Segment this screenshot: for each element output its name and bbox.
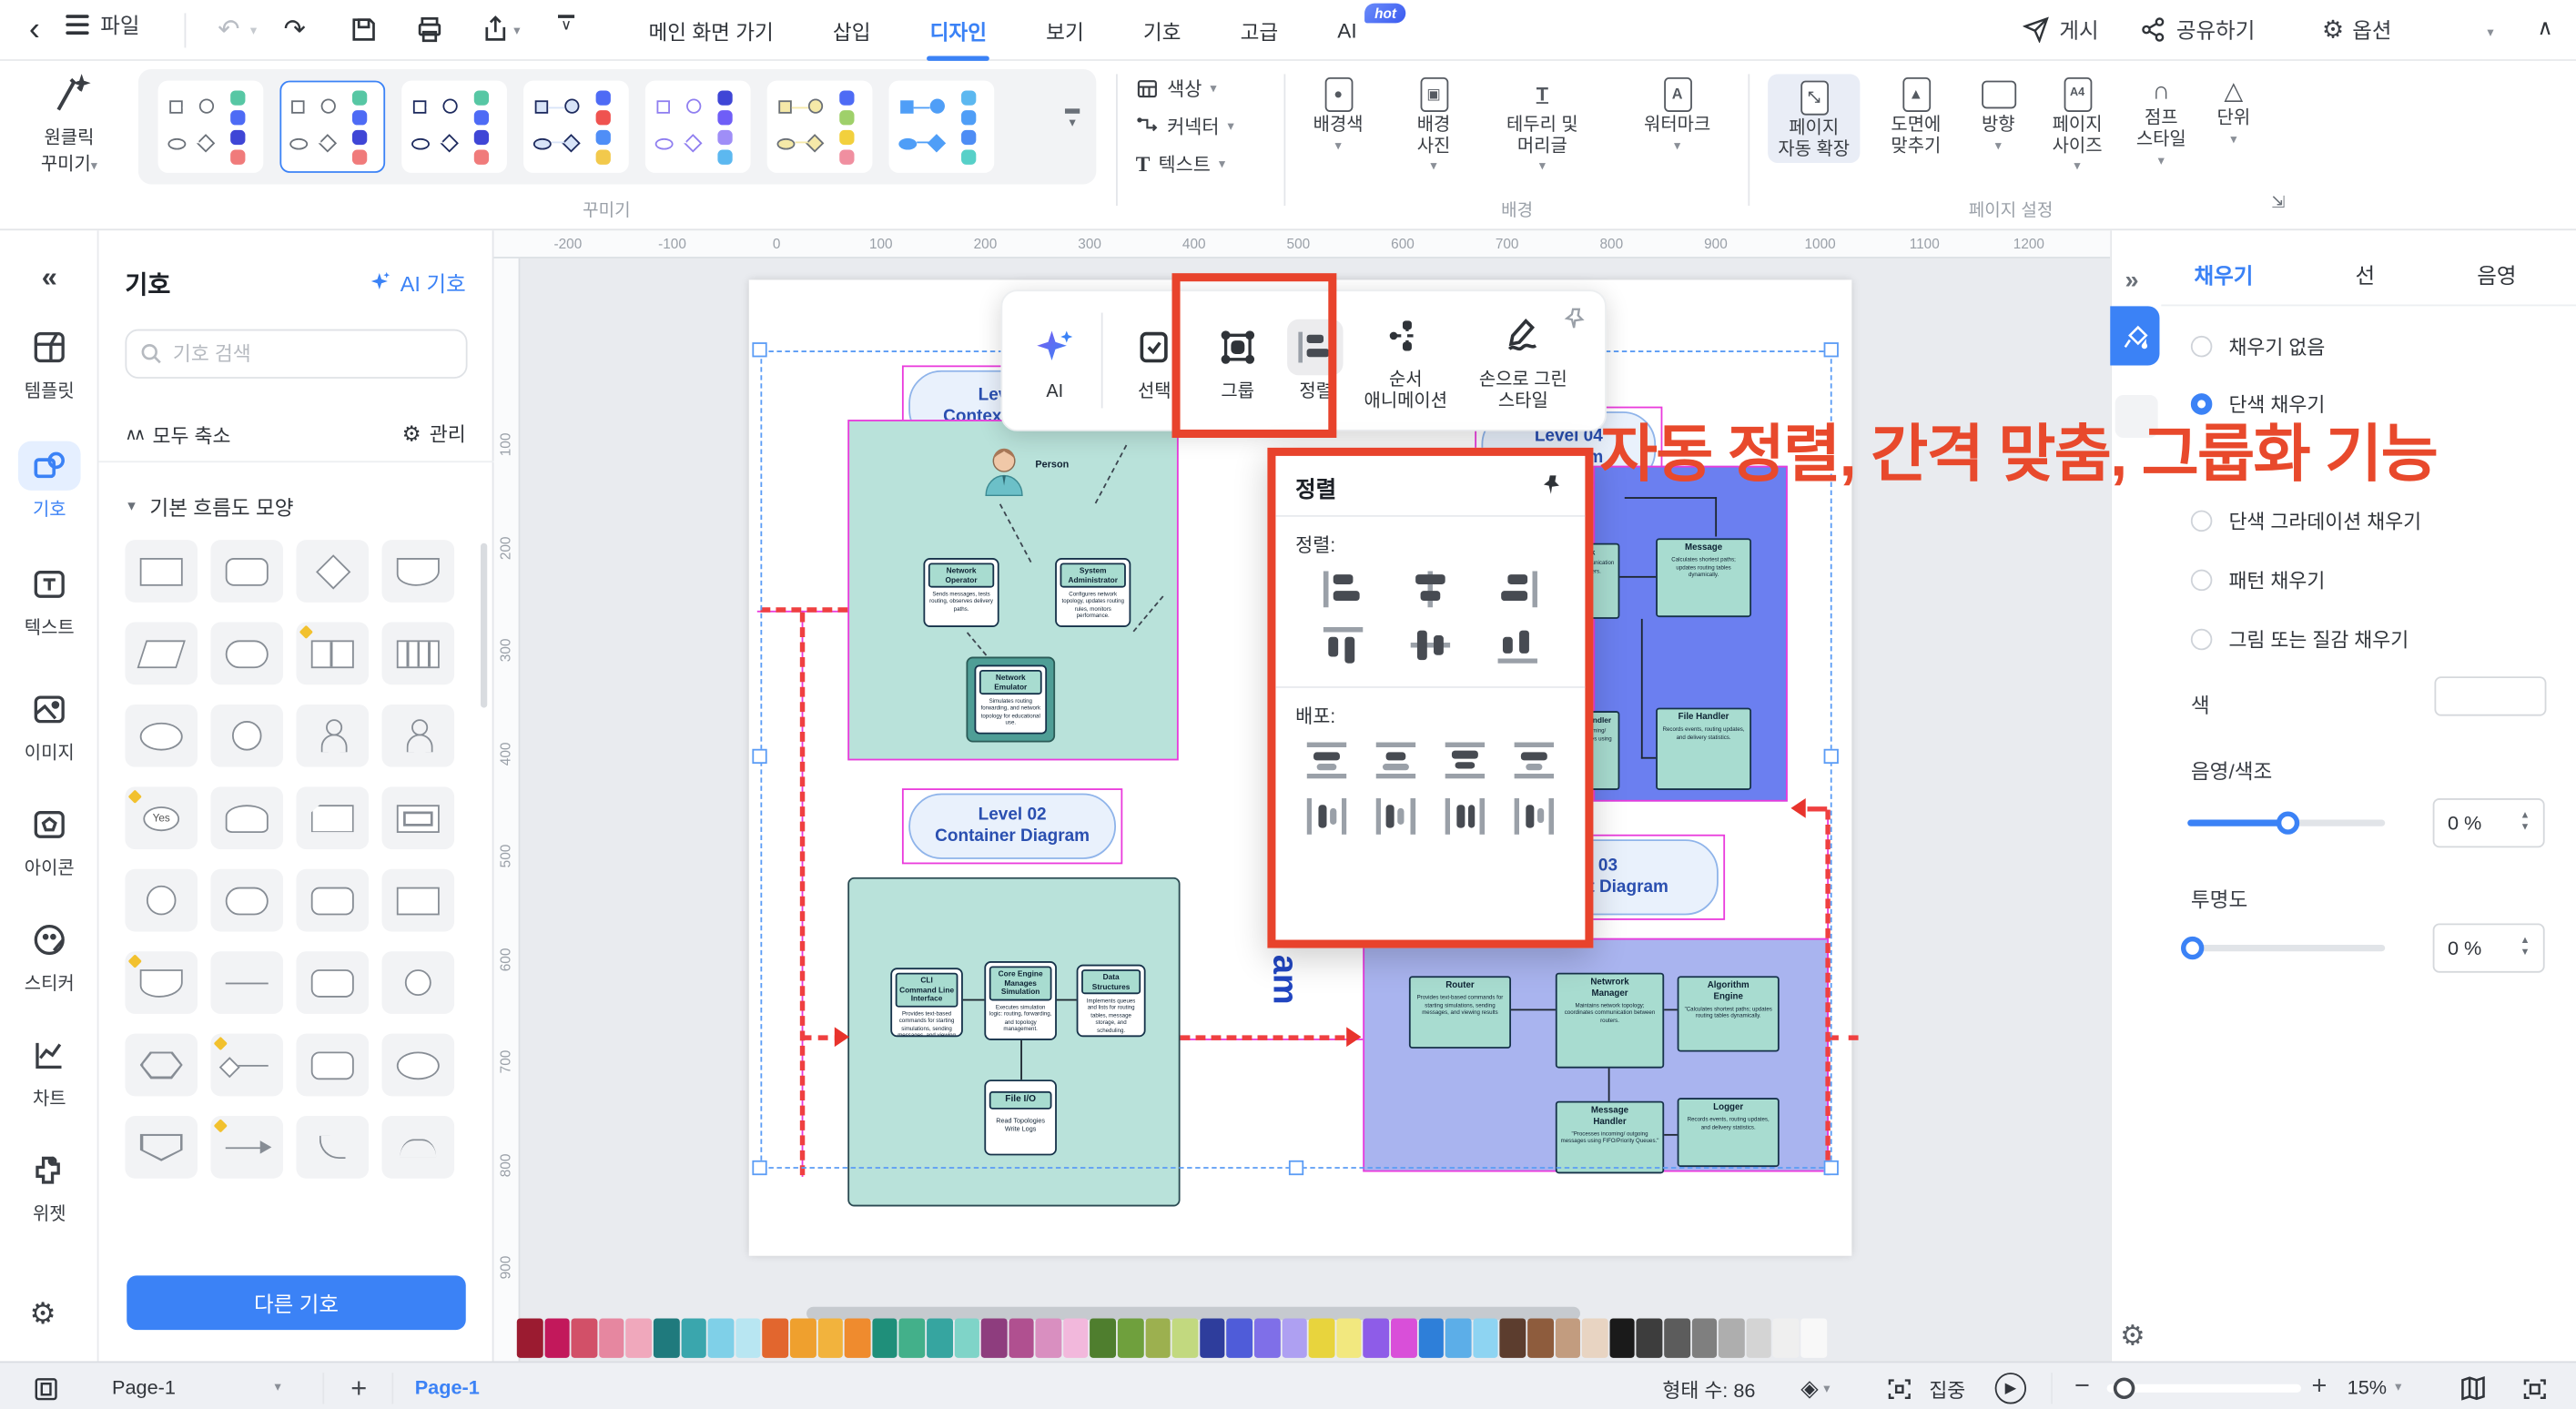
- order-animation-button[interactable]: 순서 애니메이션: [1354, 309, 1458, 412]
- color-swatch[interactable]: [1637, 1318, 1662, 1357]
- unit-button[interactable]: △단위▾: [2206, 77, 2261, 147]
- shape-flag[interactable]: [382, 540, 455, 603]
- export-caret-icon[interactable]: ▾: [513, 25, 520, 37]
- tab-advanced[interactable]: 고급: [1233, 0, 1284, 61]
- text-T-icon: T: [1136, 150, 1151, 177]
- fit-screen-icon[interactable]: [2521, 1376, 2548, 1403]
- vertical-ruler: 100200300400500600700800900: [493, 258, 520, 1363]
- shape-person[interactable]: [382, 704, 455, 767]
- page-selector[interactable]: Page-1▾: [112, 1376, 281, 1399]
- color-swatch[interactable]: [626, 1318, 652, 1357]
- page-auto-expand-button[interactable]: ⤡페이지 자동 확장: [1768, 74, 1860, 163]
- app-window: ‹ 파일 ↶ ▾ ↷ ▾ ∨ 메인 화면 가기 삽입 디자인 보기 기호 고급: [0, 0, 2576, 1409]
- zoom-slider-knob[interactable]: [2114, 1378, 2135, 1400]
- symbols-icon: [18, 441, 81, 491]
- page-tab-active[interactable]: Page-1: [415, 1376, 480, 1399]
- premium-badge: [214, 1119, 228, 1132]
- publish-button[interactable]: 게시: [2023, 13, 2099, 44]
- divider: [1116, 74, 1118, 206]
- transparency-spinner[interactable]: 0 %▲▼: [2433, 923, 2545, 972]
- ai-symbols-button[interactable]: AI 기호: [368, 267, 466, 298]
- shape-flag[interactable]: [125, 951, 198, 1014]
- shape-dline[interactable]: [210, 1034, 283, 1097]
- tab-fill[interactable]: 채우기: [2194, 258, 2253, 289]
- shape-arrow[interactable]: [210, 1116, 283, 1179]
- hot-badge: hot: [1364, 4, 1406, 24]
- back-icon[interactable]: ‹: [13, 8, 56, 51]
- bg-color-button[interactable]: ●배경색▾: [1301, 77, 1376, 153]
- color-swatch[interactable]: [1691, 1318, 1717, 1357]
- pages-icon[interactable]: [33, 1376, 59, 1403]
- premium-badge: [128, 790, 142, 804]
- collapse-toolbar-icon[interactable]: ∨: [553, 15, 580, 35]
- tab-insert[interactable]: 삽입: [827, 0, 877, 61]
- distribute-section-label: 배포:: [1275, 688, 1585, 735]
- sidebar-item-icons[interactable]: 아이콘: [0, 800, 98, 881]
- template-icon: [18, 322, 81, 371]
- border-header-button[interactable]: T테두리 및 머리글▾: [1490, 77, 1596, 173]
- zoom-out-button[interactable]: −: [2064, 1370, 2101, 1406]
- image-icon: [18, 684, 81, 734]
- sparkle-icon: [368, 270, 392, 295]
- color-swatch[interactable]: [572, 1318, 597, 1357]
- spinner-arrows-icon[interactable]: ▲▼: [2520, 937, 2530, 960]
- color-swatch[interactable]: [1582, 1318, 1607, 1357]
- shape-diamond[interactable]: [296, 540, 369, 603]
- color-palette: [517, 1318, 1827, 1357]
- sticker-icon: [18, 915, 81, 964]
- align-right-icon[interactable]: [1498, 571, 1537, 607]
- tab-main-home[interactable]: 메인 화면 가기: [642, 0, 780, 61]
- distribute-h2-icon[interactable]: [1376, 743, 1415, 779]
- align-popup: 정렬 정렬: 배포:: [1267, 448, 1593, 948]
- color-swatch[interactable]: [599, 1318, 624, 1357]
- color-swatch[interactable]: [1418, 1318, 1444, 1357]
- color-swatch[interactable]: [1473, 1318, 1498, 1357]
- fill-option-picture[interactable]: 그림 또는 질감 채우기: [2191, 625, 2409, 654]
- shape-frame[interactable]: [382, 786, 455, 849]
- shape-ellipse[interactable]: [125, 704, 198, 767]
- file-menu-label: 파일: [100, 8, 139, 39]
- color-swatch[interactable]: [1555, 1318, 1580, 1357]
- distribute-h3-icon[interactable]: [1445, 743, 1485, 779]
- color-swatch[interactable]: [735, 1318, 761, 1357]
- tab-ai[interactable]: AI hot: [1331, 0, 1364, 61]
- shape-yes[interactable]: Yes: [125, 786, 198, 849]
- color-swatch[interactable]: [544, 1318, 570, 1357]
- color-swatch[interactable]: [654, 1318, 679, 1357]
- color-swatch[interactable]: [1746, 1318, 1771, 1357]
- color-grid-icon: [1136, 76, 1159, 99]
- pin-filled-icon[interactable]: [1541, 472, 1566, 497]
- file-menu[interactable]: 파일: [66, 8, 139, 39]
- color-swatch[interactable]: [1063, 1318, 1089, 1357]
- fit-to-drawing-icon: ▲: [1902, 77, 1930, 112]
- collapse-all-button[interactable]: ∧∧ 모두 축소: [125, 421, 230, 450]
- color-swatch[interactable]: [1118, 1318, 1143, 1357]
- shape-arc[interactable]: [382, 1116, 455, 1179]
- orientation-button[interactable]: 방향▾: [1969, 77, 2028, 153]
- radio-icon: [2191, 570, 2213, 592]
- color-swatch[interactable]: [1090, 1318, 1116, 1357]
- tab-design[interactable]: 디자인: [923, 0, 993, 61]
- panel-expand-icon[interactable]: »: [2125, 267, 2139, 295]
- page-settings-expand-icon[interactable]: ⇲: [2271, 194, 2285, 212]
- group-label-page: 페이지 설정: [1969, 198, 2054, 222]
- sidebar-settings-gear-icon[interactable]: ⚙: [30, 1297, 56, 1332]
- shape-rounded[interactable]: [296, 869, 369, 932]
- watermark-icon: A: [1663, 77, 1691, 112]
- manage-gear-icon: ⚙: [402, 421, 421, 447]
- theme-preset-7[interactable]: [888, 81, 994, 173]
- shape-circle[interactable]: [210, 704, 283, 767]
- layers-icon: ◈: [1800, 1374, 1818, 1403]
- export-icon[interactable]: [474, 8, 517, 51]
- jump-style-button[interactable]: ∩점프 스타일▾: [2126, 77, 2196, 167]
- save-icon[interactable]: [342, 8, 385, 51]
- divider: [1100, 313, 1102, 409]
- color-swatch[interactable]: [1719, 1318, 1744, 1357]
- connector-icon: [1136, 115, 1159, 137]
- divider: [185, 13, 187, 47]
- shade-spinner[interactable]: 0 %▲▼: [2433, 798, 2545, 847]
- color-swatch[interactable]: [1609, 1318, 1635, 1357]
- shape-card[interactable]: [296, 786, 369, 849]
- fill-option-pattern[interactable]: 패턴 채우기: [2191, 566, 2325, 594]
- focus-label[interactable]: 집중: [1929, 1376, 1965, 1404]
- color-swatch[interactable]: [1227, 1318, 1253, 1357]
- double-chevron-up-icon: ∧∧: [125, 426, 142, 444]
- color-swatch[interactable]: [817, 1318, 843, 1357]
- color-swatch[interactable]: [681, 1318, 706, 1357]
- color-swatch[interactable]: [790, 1318, 816, 1357]
- shape-hook[interactable]: [296, 1116, 369, 1179]
- color-swatch[interactable]: [517, 1318, 543, 1357]
- selection-handle[interactable]: [1824, 1161, 1839, 1175]
- zoom-slider[interactable]: [2107, 1384, 2301, 1393]
- color-swatch[interactable]: [981, 1318, 1007, 1357]
- icons-icon: [18, 800, 81, 849]
- colors-button[interactable]: 색상▾: [1136, 74, 1234, 102]
- paint-bucket-icon: [2121, 322, 2149, 350]
- fill-tool-active[interactable]: [2110, 306, 2159, 365]
- section-basic-flowchart[interactable]: ▼기본 흐름도 모양: [125, 491, 293, 522]
- shape-rounded[interactable]: [296, 1034, 369, 1097]
- premium-badge: [214, 1037, 228, 1050]
- shape-hex[interactable]: [125, 1034, 198, 1097]
- layers-button[interactable]: ◈▾: [1800, 1374, 1830, 1403]
- tab-symbols[interactable]: 기호: [1137, 0, 1188, 61]
- color-swatch[interactable]: [1336, 1318, 1362, 1357]
- align-hcenter-icon[interactable]: [1411, 571, 1450, 607]
- symbol-search-input[interactable]: [173, 342, 420, 365]
- distribute-v4-icon[interactable]: [1515, 798, 1554, 835]
- color-swatch[interactable]: [872, 1318, 898, 1357]
- collapse-ribbon-icon[interactable]: ∧: [2537, 15, 2552, 41]
- clipped-title-text: am: [1264, 955, 1303, 1005]
- panel-scrollbar[interactable]: [481, 543, 487, 708]
- undo-caret-icon[interactable]: ▾: [250, 25, 257, 37]
- top-menubar: ‹ 파일 ↶ ▾ ↷ ▾ ∨ 메인 화면 가기 삽입 디자인 보기 기호 고급: [0, 0, 2576, 61]
- tab-line[interactable]: 선: [2355, 258, 2375, 289]
- palette-bar: ▾: [517, 1323, 552, 1353]
- sidebar-item-symbols[interactable]: 기호: [0, 441, 98, 522]
- help-caret-icon[interactable]: ▾: [2487, 26, 2493, 39]
- divider: [391, 1373, 393, 1404]
- tab-shadow[interactable]: 음영: [2477, 258, 2516, 289]
- color-label: 색: [2191, 688, 2210, 719]
- shape-count: 형태 수: 86: [1662, 1376, 1755, 1404]
- color-swatch[interactable]: [1009, 1318, 1034, 1357]
- distribute-h4-icon[interactable]: [1515, 743, 1554, 779]
- pencil-squiggle-icon: [1496, 309, 1551, 364]
- color-swatch[interactable]: [1664, 1318, 1689, 1357]
- select-button[interactable]: 선택: [1112, 319, 1197, 402]
- border-header-icon: T: [1528, 77, 1557, 112]
- sidebar-item-templates[interactable]: 템플릿: [0, 322, 98, 403]
- selection-handle[interactable]: [752, 342, 766, 357]
- format-tabs: 채우기 선 음영: [2194, 258, 2516, 289]
- color-swatch[interactable]: [927, 1318, 952, 1357]
- shape-rect[interactable]: [125, 540, 198, 603]
- shape-circle[interactable]: [125, 869, 198, 932]
- chart-icon: [18, 1030, 81, 1080]
- group-label-decorate: 꾸미기: [583, 198, 630, 222]
- menu-icon: [66, 9, 88, 39]
- color-swatch[interactable]: [1800, 1318, 1826, 1357]
- page-auto-expand-icon: ⤡: [1800, 81, 1828, 116]
- group-button[interactable]: 그룹: [1197, 319, 1279, 402]
- ai-button[interactable]: AI: [1019, 319, 1090, 402]
- group-label-bg: 배경: [1501, 198, 1533, 222]
- transparency-label: 투명도: [2191, 882, 2247, 913]
- divider: [2161, 305, 2576, 307]
- fill-option-gradient[interactable]: 단색 그라데이션 채우기: [2191, 507, 2421, 535]
- panel-title: 기호: [125, 267, 170, 301]
- align-left-icon[interactable]: [1323, 571, 1362, 607]
- select-check-icon: [1127, 319, 1182, 374]
- color-swatch[interactable]: [1282, 1318, 1307, 1357]
- color-swatch[interactable]: [708, 1318, 734, 1357]
- print-icon[interactable]: [408, 8, 451, 51]
- focus-frame-icon[interactable]: [1886, 1376, 1912, 1403]
- distribute-h1-icon[interactable]: [1307, 743, 1346, 779]
- color-swatch[interactable]: [1200, 1318, 1225, 1357]
- radio-icon: [2191, 511, 2213, 532]
- zoom-in-button[interactable]: +: [2301, 1370, 2338, 1406]
- color-swatch[interactable]: [1500, 1318, 1526, 1357]
- shape-cylinder[interactable]: [210, 786, 283, 849]
- theme-preset-4[interactable]: [523, 81, 629, 173]
- theme-preset-2[interactable]: [279, 81, 385, 173]
- shape-striped[interactable]: [382, 623, 455, 685]
- text-button[interactable]: T 텍스트▾: [1136, 150, 1234, 178]
- color-swatch[interactable]: [1527, 1318, 1553, 1357]
- bg-color-icon: ●: [1324, 77, 1353, 112]
- align-button[interactable]: 정렬: [1278, 319, 1353, 402]
- color-swatch[interactable]: [2434, 676, 2546, 715]
- theme-preset-5[interactable]: [645, 81, 751, 173]
- format-panel: » 채우기 선 음영 채우기 없음 단색 채우기 단색 그라데이션 채우기 패턴…: [2110, 230, 2576, 1363]
- share-button[interactable]: 공유하기: [2140, 13, 2255, 44]
- floating-toolbar: AI 선택 그룹 정렬 순서 애니메이션: [1000, 289, 1606, 431]
- magic-wand-icon: [47, 74, 90, 117]
- orientation-icon: [1981, 81, 2015, 109]
- text-icon: [18, 560, 81, 609]
- color-swatch[interactable]: [845, 1318, 870, 1357]
- ai-sparkle-icon: [1027, 319, 1082, 374]
- bg-photo-button[interactable]: ▣배경 사진▾: [1393, 77, 1475, 173]
- sidebar-item-stickers[interactable]: 스티커: [0, 915, 98, 996]
- radio-icon: [2191, 336, 2213, 358]
- selection-handle[interactable]: [752, 749, 766, 764]
- theme-preset-3[interactable]: [401, 81, 507, 173]
- shape-stadium[interactable]: [210, 623, 283, 685]
- left-sidebar: « 템플릿 기호 텍스트 이미지 아이콘 스티커 차트: [0, 230, 98, 1363]
- shade-slider-knob[interactable]: [2277, 811, 2299, 834]
- share-nodes-icon: [2140, 15, 2166, 42]
- paper-plane-icon: [2023, 15, 2050, 42]
- color-swatch[interactable]: [1145, 1318, 1171, 1357]
- distribute-v2-icon[interactable]: [1376, 798, 1415, 835]
- shape-ring[interactable]: [382, 951, 455, 1014]
- manage-button[interactable]: ⚙관리: [402, 420, 466, 448]
- premium-badge: [128, 954, 142, 968]
- preset-more-toggle[interactable]: ▾: [1065, 108, 1080, 130]
- color-swatch[interactable]: [1172, 1318, 1198, 1357]
- undo-icon[interactable]: ↶: [208, 8, 250, 51]
- align-bottom-icon[interactable]: [1498, 627, 1537, 664]
- play-icon[interactable]: ▶: [1995, 1373, 2026, 1404]
- spinner-arrows-icon[interactable]: ▲▼: [2520, 811, 2530, 835]
- bg-photo-icon: ▣: [1420, 77, 1448, 112]
- selection-handle[interactable]: [1824, 342, 1839, 357]
- order-animation-icon: [1378, 309, 1434, 364]
- connector-button[interactable]: 커넥터▾: [1136, 112, 1234, 140]
- shape-rect[interactable]: [382, 869, 455, 932]
- sidebar-item-charts[interactable]: 차트: [0, 1030, 98, 1111]
- menu-tabs: 메인 화면 가기 삽입 디자인 보기 기호 고급 AI hot: [642, 0, 1364, 61]
- premium-badge: [299, 625, 313, 639]
- transparency-slider-knob[interactable]: [2181, 937, 2204, 959]
- theme-preset-1[interactable]: [158, 81, 264, 173]
- selection-handle[interactable]: [1824, 749, 1839, 764]
- widget-icon: [18, 1146, 81, 1195]
- shape-rounded[interactable]: [296, 951, 369, 1014]
- shape-shield[interactable]: [125, 1116, 198, 1179]
- add-page-button[interactable]: +: [340, 1370, 379, 1409]
- shape-split[interactable]: [296, 623, 369, 685]
- divider: [2051, 1373, 2053, 1404]
- shape-person[interactable]: [296, 704, 369, 767]
- options-button[interactable]: ⚙ 옵션: [2322, 13, 2392, 44]
- align-popup-title: 정렬: [1275, 456, 1585, 515]
- divider: [98, 461, 493, 462]
- divider: [1283, 74, 1285, 206]
- page-size-button[interactable]: A4페이지 사이즈▾: [2038, 77, 2117, 173]
- distribute-grid: [1275, 735, 1585, 841]
- color-swatch[interactable]: [1254, 1318, 1280, 1357]
- color-swatch[interactable]: [1364, 1318, 1389, 1357]
- unit-icon: △: [2224, 77, 2243, 106]
- more-symbols-button[interactable]: 다른 기호: [127, 1275, 466, 1330]
- page-size-icon: A4: [2064, 77, 2092, 112]
- theme-presets: ▾: [138, 69, 1096, 185]
- promo-annotation-text: 자동 정렬, 간격 맞춤, 그룹화 기능: [1600, 403, 2437, 493]
- ribbon: 원클릭 꾸미기▾ ▾ 꾸미기 색상▾ 커넥터▾ T 텍스트▾: [0, 61, 2576, 230]
- symbol-search[interactable]: [125, 329, 467, 379]
- color-swatch[interactable]: [899, 1318, 925, 1357]
- sidebar-item-image[interactable]: 이미지: [0, 684, 98, 765]
- divider: [1748, 74, 1749, 206]
- jump-style-icon: ∩: [2153, 77, 2170, 106]
- shape-stadium[interactable]: [210, 869, 283, 932]
- selection-handle[interactable]: [1289, 1161, 1303, 1175]
- shade-label: 음영/색조: [2191, 754, 2272, 785]
- search-icon: [140, 342, 163, 365]
- panel-collapse-icon[interactable]: «: [26, 260, 73, 297]
- color-swatch[interactable]: [1391, 1318, 1416, 1357]
- align-vcenter-icon[interactable]: [1411, 627, 1450, 664]
- map-icon[interactable]: [2459, 1374, 2488, 1403]
- connector-red-dashed[interactable]: [1829, 1035, 1859, 1039]
- sidebar-item-text[interactable]: 텍스트: [0, 560, 98, 641]
- align-grid: [1275, 564, 1585, 670]
- shape-hline[interactable]: [210, 951, 283, 1014]
- watermark-button[interactable]: A워터마크▾: [1629, 77, 1725, 153]
- status-bar: Page-1▾ + Page-1 형태 수: 86 ◈▾ 집중 ▶ − + 15…: [0, 1361, 2576, 1409]
- color-swatch[interactable]: [1773, 1318, 1799, 1357]
- shape-ellipse[interactable]: [382, 1034, 455, 1097]
- color-swatch[interactable]: [1036, 1318, 1061, 1357]
- gear-icon: ⚙: [2322, 14, 2344, 44]
- distribute-v3-icon[interactable]: [1445, 798, 1485, 835]
- color-swatch[interactable]: [1309, 1318, 1334, 1357]
- zoom-level[interactable]: 15%▾: [2348, 1376, 2402, 1399]
- align-section-label: 정렬:: [1275, 517, 1585, 564]
- sidebar-item-widgets[interactable]: 위젯: [0, 1146, 98, 1227]
- align-top-icon[interactable]: [1323, 627, 1362, 664]
- radio-icon: [2191, 629, 2213, 651]
- shape-para[interactable]: [125, 623, 198, 685]
- redo-icon[interactable]: ↷: [273, 8, 316, 51]
- color-swatch[interactable]: [954, 1318, 979, 1357]
- pin-icon[interactable]: [1564, 306, 1588, 330]
- shape-rounded[interactable]: [210, 540, 283, 603]
- fill-option-none[interactable]: 채우기 없음: [2191, 332, 2325, 360]
- color-swatch[interactable]: [1445, 1318, 1471, 1357]
- align-icon: [1288, 319, 1344, 374]
- symbol-panel: 기호 AI 기호 ∧∧ 모두 축소 ⚙관리 ▼기본 흐름도 모양 Yes 다른 …: [98, 230, 493, 1363]
- selection-handle[interactable]: [752, 1161, 766, 1175]
- oneclick-decorate-button[interactable]: 원클릭 꾸미기▾: [16, 71, 122, 177]
- distribute-v1-icon[interactable]: [1307, 798, 1346, 835]
- tab-view[interactable]: 보기: [1040, 0, 1090, 61]
- page-caret-icon: ▾: [274, 1381, 280, 1394]
- palette-settings-gear-icon[interactable]: ⚙: [2120, 1320, 2145, 1353]
- group-icon: [1210, 319, 1265, 374]
- transparency-slider[interactable]: [2187, 945, 2385, 951]
- color-swatch[interactable]: [763, 1318, 788, 1357]
- fit-to-drawing-button[interactable]: ▲도면에 맞추기: [1873, 77, 1959, 157]
- horizontal-ruler: -200-10001002003004005006007008009001000…: [493, 230, 2110, 258]
- divider: [322, 1373, 324, 1404]
- theme-preset-6[interactable]: [767, 81, 873, 173]
